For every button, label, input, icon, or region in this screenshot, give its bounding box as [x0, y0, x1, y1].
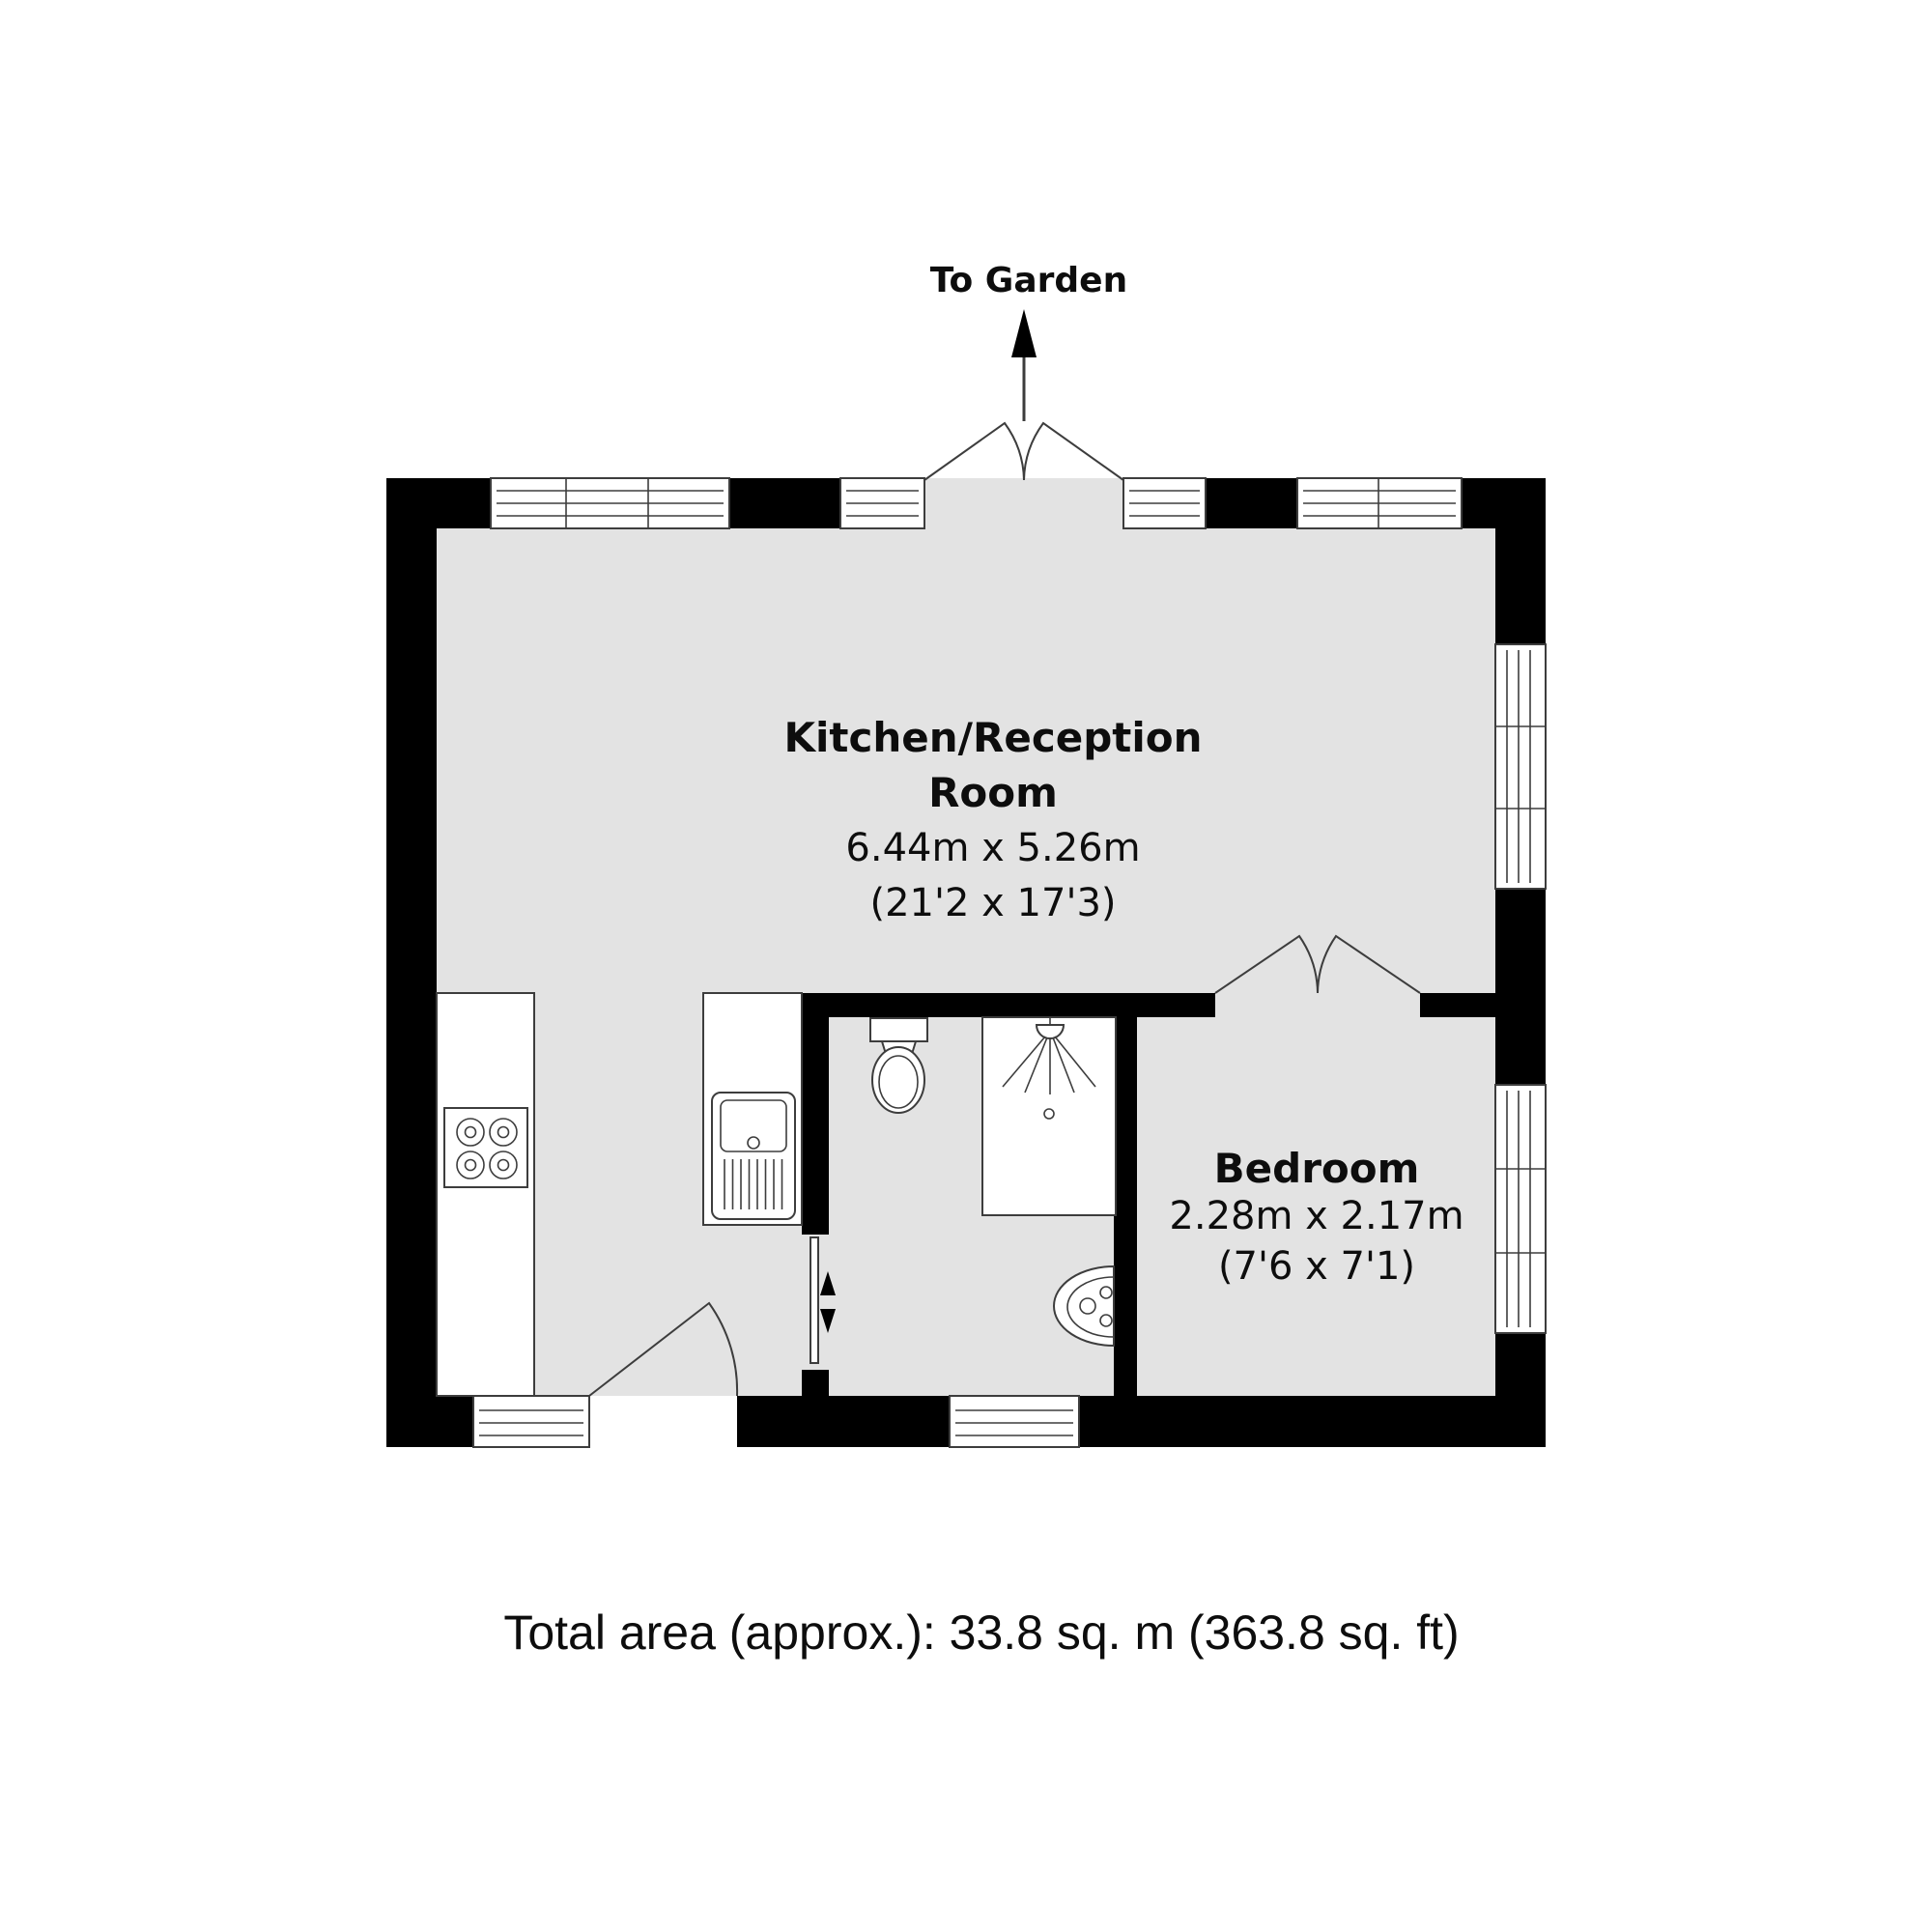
french-doors	[924, 423, 1123, 480]
room-name-line: Kitchen/Reception	[783, 714, 1202, 761]
to-garden-label: To Garden	[930, 261, 1127, 300]
window	[1495, 644, 1546, 889]
window	[1297, 478, 1462, 528]
room-name-line: Room	[928, 769, 1058, 816]
room-dims-metric: 2.28m x 2.17m	[1169, 1194, 1463, 1238]
bathroom-left-wall	[802, 993, 829, 1235]
top-wall-segment	[1206, 478, 1297, 528]
bathroom-right-wall	[1114, 1017, 1137, 1396]
left-wall	[386, 478, 437, 1447]
room-name-line: Bedroom	[1214, 1145, 1420, 1192]
sliding-door-panel	[810, 1237, 818, 1363]
bottom-wall-segment	[737, 1396, 950, 1447]
window	[840, 478, 924, 528]
kitchen-sink	[712, 1093, 795, 1219]
window	[473, 1396, 589, 1447]
toilet	[870, 1018, 927, 1113]
window	[1495, 1085, 1546, 1333]
bedroom-top-wall-right	[1420, 993, 1497, 1017]
garden-arrow	[1011, 309, 1037, 421]
top-wall-segment	[729, 478, 840, 528]
window	[1123, 478, 1206, 528]
shower	[982, 1017, 1116, 1215]
room-dims-imperial: (21'2 x 17'3)	[870, 881, 1117, 925]
top-wall-segment	[386, 478, 491, 528]
bottom-wall-segment	[386, 1396, 473, 1447]
window	[950, 1396, 1079, 1447]
floorplan-svg: To Garden Kitchen/Reception Room 6.44m x…	[0, 0, 1932, 1932]
french-door-right-leaf	[1024, 423, 1123, 480]
total-area-text: Total area (approx.): 33.8 sq. m (363.8 …	[503, 1605, 1459, 1660]
window	[491, 478, 729, 528]
right-wall-segment	[1495, 478, 1546, 644]
right-wall-segment	[1495, 889, 1546, 1085]
room-dims-imperial: (7'6 x 7'1)	[1218, 1244, 1415, 1289]
french-door-left-leaf	[924, 423, 1024, 480]
hob	[444, 1108, 527, 1187]
room-dims-metric: 6.44m x 5.26m	[845, 826, 1140, 870]
bottom-wall-segment	[1079, 1396, 1546, 1447]
garden-door-opening-floor	[924, 478, 1123, 530]
kitchen-counter-left	[437, 993, 534, 1396]
bathroom-bedroom-top-wall	[802, 993, 1215, 1017]
floorplan-page: To Garden Kitchen/Reception Room 6.44m x…	[0, 0, 1932, 1932]
bathroom-left-wall-stub	[802, 1370, 829, 1399]
kitchen-counter-sink	[703, 993, 802, 1225]
arrow-head	[1011, 309, 1037, 357]
